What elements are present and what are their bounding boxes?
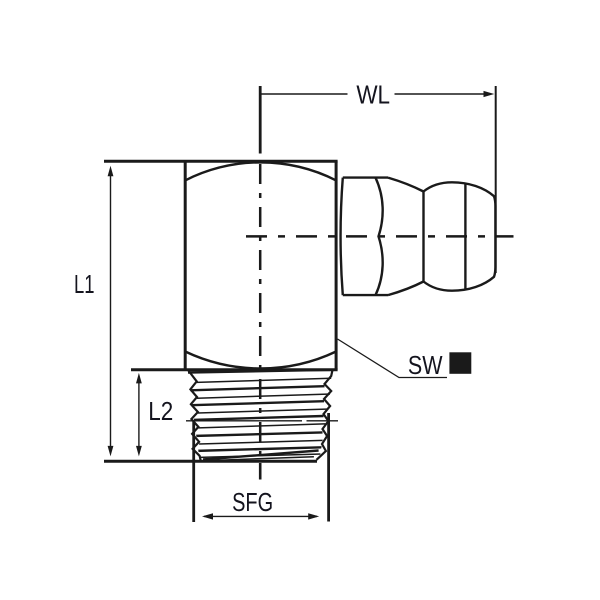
svg-text:WL: WL (356, 79, 390, 109)
svg-text:L2: L2 (148, 396, 173, 426)
svg-text:SFG: SFG (232, 487, 273, 517)
svg-text:L1: L1 (74, 269, 95, 299)
svg-text:SW: SW (408, 350, 443, 380)
